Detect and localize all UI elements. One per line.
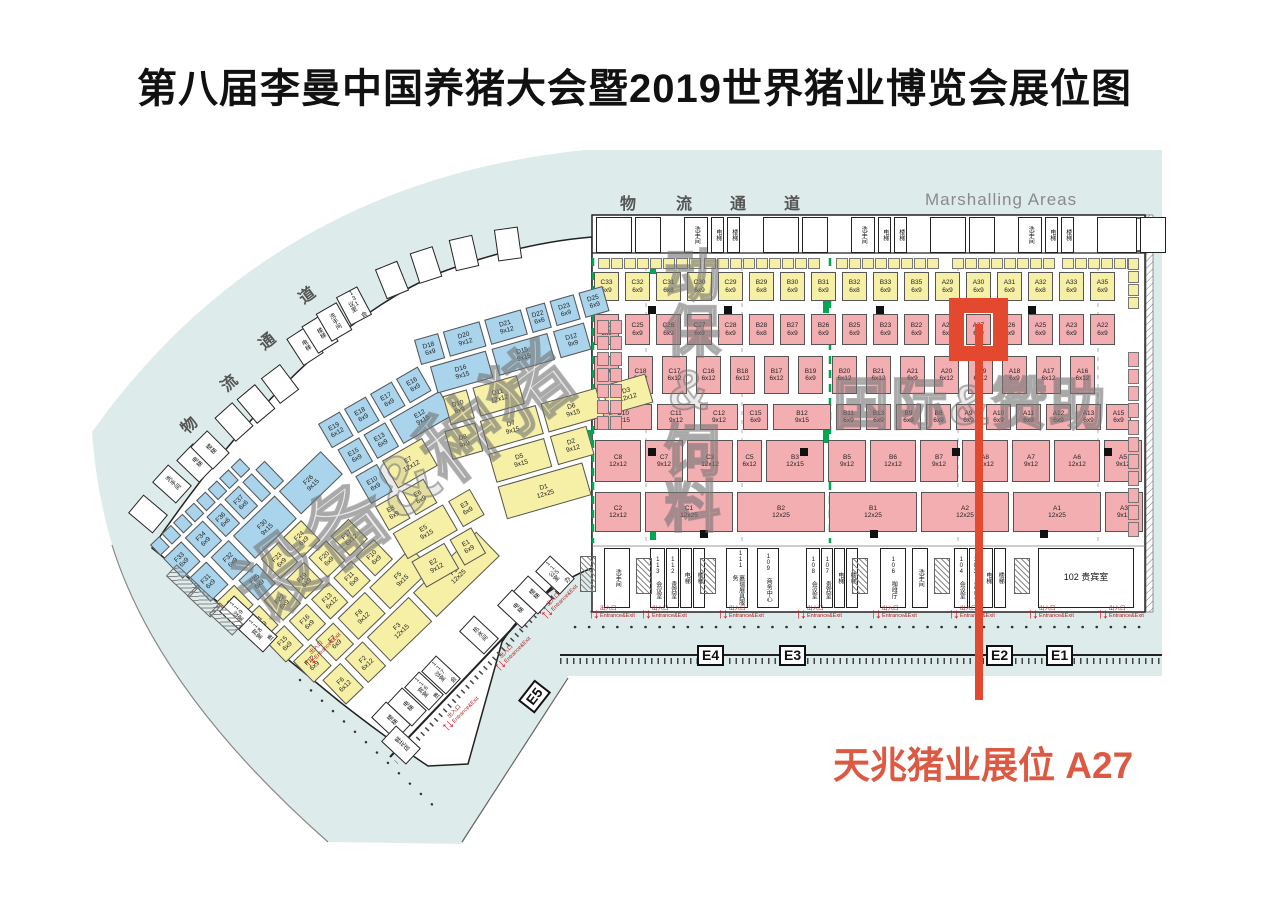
up-down-arrows-icon: ↑↓ — [588, 606, 598, 620]
booth-D12: D129x9 — [553, 323, 591, 359]
booth-C2: C212x12 — [595, 492, 641, 532]
room-bottom-15: 电梯 — [982, 548, 993, 608]
up-down-arrows-icon: ↑↓ — [717, 606, 727, 620]
room-utility — [635, 217, 661, 253]
small-booth — [1128, 437, 1139, 452]
booth-A6: A612x12 — [1054, 440, 1100, 482]
room-restroom: 洗手间 — [1018, 217, 1042, 253]
small-booth — [597, 416, 609, 430]
booth-D2: D29x12 — [550, 426, 595, 465]
booth-B27: B276x9 — [780, 314, 805, 345]
booth-B6: B612x12 — [870, 440, 916, 482]
small-booth — [610, 336, 622, 350]
booth-row: C212x12C112x25B212x25B112x25A212x25A112x… — [592, 492, 1145, 532]
storage-strip — [580, 556, 596, 592]
small-booth — [914, 258, 926, 269]
pillar — [1040, 530, 1048, 538]
small-booth — [610, 368, 622, 382]
booth-C16: C166x12 — [696, 356, 721, 394]
small-booth — [704, 258, 716, 269]
booth-C29: C296x9 — [718, 272, 743, 301]
small-booth — [756, 258, 768, 269]
small-booth — [875, 258, 887, 269]
small-booth — [1128, 403, 1139, 418]
room-bottom-11: 106 咖啡厅 — [880, 548, 906, 608]
pillar — [648, 448, 656, 456]
small-booth — [1017, 258, 1029, 269]
room-bottom-9: 电梯 — [834, 548, 845, 608]
booth-A20: A206x12 — [934, 356, 959, 394]
entrance-arrows-icon: ↑↓出入口Entrance&Exit — [795, 606, 842, 620]
small-booth — [952, 258, 964, 269]
highlight-square — [949, 298, 1008, 361]
booth-B17: B176x12 — [764, 356, 789, 394]
small-booth — [901, 258, 913, 269]
pillar — [648, 306, 656, 314]
room-bottom-13: 104 会议室 — [954, 548, 968, 608]
entrance-arrows-icon: ↑↓出入口Entrance&Exit — [588, 606, 635, 620]
room-bottom-0: 洗手间 — [604, 548, 630, 608]
small-booth — [1088, 258, 1100, 269]
room-bottom-2: 112 贵宾室 — [666, 548, 679, 608]
booth-A1: A112x25 — [1013, 492, 1101, 532]
room-utility — [802, 217, 828, 253]
small-booth — [1004, 258, 1016, 269]
small-booth — [730, 258, 742, 269]
room-utility — [763, 217, 799, 253]
booth-A30: A306x9 — [966, 272, 991, 301]
small-booth — [1128, 369, 1139, 384]
booth-D10: D106x9 — [443, 389, 475, 425]
booth-B8: B86x9 — [926, 404, 951, 430]
small-booth — [1128, 297, 1139, 309]
up-down-arrows-icon: ↑↓ — [640, 606, 650, 620]
booth-A35: A356x9 — [1090, 272, 1115, 301]
floorplan-page: 第八届李曼中国养猪大会暨2019世界猪业博览会展位图 Marshalling A… — [0, 0, 1269, 897]
small-booth — [1128, 258, 1139, 270]
entrance-label: 出入口Entrance&Exit — [1109, 606, 1144, 619]
small-booth — [927, 258, 939, 269]
room-stairs: 楼梯 — [1061, 217, 1074, 253]
booth-C28: C286x9 — [718, 314, 743, 345]
booth-C17: C176x12 — [662, 356, 687, 394]
small-booth — [597, 400, 609, 414]
small-booth — [782, 258, 794, 269]
booth-D25: D256x9 — [578, 286, 609, 318]
booth-B2: B212x25 — [737, 492, 825, 532]
pillar — [870, 530, 878, 538]
small-booth — [689, 258, 701, 269]
booth-B3: B312x15 — [766, 440, 824, 482]
booth-A7: A79x12 — [1012, 440, 1050, 482]
pillar — [724, 306, 732, 314]
entrance-label: 出入口Entrance&Exit — [652, 606, 687, 619]
small-booth — [1128, 284, 1139, 296]
small-booth — [1128, 454, 1139, 469]
room-bottom-3: 电梯 — [680, 548, 692, 608]
booth-C32: C326x9 — [625, 272, 650, 301]
booth-A12: A126x9 — [1046, 404, 1071, 430]
entrance-arrows-icon: ↑↓出入口Entrance&Exit — [1097, 606, 1144, 620]
small-booth — [965, 258, 977, 269]
small-booth — [597, 320, 609, 334]
booth-B12: B129x15 — [773, 404, 831, 430]
booth-C12: C129x12 — [700, 404, 738, 430]
entrance-arrows-icon: ↑↓出入口Entrance&Exit — [948, 606, 995, 620]
room-bottom-17: 102 贵宾室 — [1038, 548, 1134, 608]
booth-E1: E16x9 — [449, 527, 486, 565]
logistics-corridor-label: 通 — [730, 190, 746, 214]
booth-row: C236x9C256x9C266x9C276x9C286x9B286x8B276… — [592, 314, 1145, 345]
small-booth — [849, 258, 861, 269]
small-booth — [610, 384, 622, 398]
small-booth — [637, 258, 649, 269]
booth-A22: A226x9 — [1090, 314, 1115, 345]
booth-row: C206x12C186x12C176x12C166x12B186x12B176x… — [592, 356, 1145, 394]
booth-row: C109x15C119x12C129x12C156x9B129x15B116x9… — [592, 404, 1145, 430]
room-bottom-12: 洗手间 — [912, 548, 928, 608]
booth-D22: D226x6 — [526, 303, 552, 334]
booth-B1: B112x25 — [829, 492, 917, 532]
up-down-arrows-icon: ↑↓ — [870, 606, 880, 620]
booth-C30: C306x9 — [687, 272, 712, 301]
booth-C11: C119x12 — [657, 404, 695, 430]
small-booth — [598, 258, 610, 269]
small-booth — [888, 258, 900, 269]
small-booth — [597, 368, 609, 382]
booth-B28: B286x8 — [749, 314, 774, 345]
booth-A29: A296x9 — [935, 272, 960, 301]
small-booth — [795, 258, 807, 269]
booth-D8: D89x9 — [444, 422, 483, 460]
booth-row: C812x12C79x12C312x12C56x12B312x15B59x12B… — [592, 440, 1145, 482]
booth-C26: C266x9 — [656, 314, 681, 345]
booth-C27: C276x9 — [687, 314, 712, 345]
small-booth — [610, 320, 622, 334]
pillar — [1104, 448, 1112, 456]
booth-B31: B316x9 — [811, 272, 836, 301]
gate-E4: E4 — [697, 645, 724, 666]
pillar — [800, 448, 808, 456]
booth-B5: B59x12 — [828, 440, 866, 482]
room-stairs: 楼梯 — [727, 217, 740, 253]
gate-E3: E3 — [779, 645, 806, 666]
room-bottom-5: 111 嘉瑞展具服务 — [726, 548, 748, 608]
booth-A8: A812x12 — [962, 440, 1008, 482]
booth-A33: A336x9 — [1059, 272, 1084, 301]
small-booth — [1128, 488, 1139, 503]
pillar — [876, 306, 884, 314]
booth-B25: B256x9 — [842, 314, 867, 345]
booth-B20: B206x12 — [832, 356, 857, 394]
pillar — [700, 530, 708, 538]
small-booth — [650, 258, 662, 269]
entrance-label: 出入口Entrance&Exit — [600, 606, 635, 619]
small-booth — [836, 258, 848, 269]
small-booth — [1128, 352, 1139, 367]
booth-A10: A106x9 — [986, 404, 1011, 430]
small-booth — [717, 258, 729, 269]
up-down-arrows-icon: ↑↓ — [795, 606, 805, 620]
booth-B13: B136x9 — [866, 404, 891, 430]
room-utility — [930, 217, 966, 253]
room-utility — [969, 217, 995, 253]
logistics-corridor-label: 物 — [620, 190, 636, 214]
room-elevator: 电梯 — [1045, 217, 1058, 253]
small-booth — [1043, 258, 1055, 269]
booth-A13: A136x9 — [1076, 404, 1101, 430]
logistics-corridor-label: 道 — [784, 190, 800, 214]
pillar — [952, 448, 960, 456]
entrance-arrows-icon: ↑↓出入口Entrance&Exit — [640, 606, 687, 620]
booth-A11: A116x9 — [1016, 404, 1041, 430]
booth-C3: C312x12 — [687, 440, 733, 482]
booth-A25: A256x9 — [1028, 314, 1053, 345]
booth-D23: D236x9 — [550, 294, 581, 326]
room-bottom-7: 108 会议室 — [806, 548, 820, 608]
booth-B21: B216x12 — [866, 356, 891, 394]
small-booth — [610, 352, 622, 366]
small-booth — [1101, 258, 1113, 269]
storage-strip — [700, 558, 716, 594]
booth-A21: A216x9 — [900, 356, 925, 394]
small-booth — [611, 258, 623, 269]
small-booth — [1128, 271, 1139, 283]
highlight-label: 天兆猪业展位 A27 — [833, 735, 1133, 789]
booth-B11: B116x9 — [836, 404, 861, 430]
small-booth — [1114, 258, 1126, 269]
room-bottom-8: 107 贵宾室 — [821, 548, 833, 608]
gate-E2: E2 — [986, 645, 1013, 666]
entrance-label: 出入口Entrance&Exit — [882, 606, 917, 619]
small-booth — [676, 258, 688, 269]
room-bottom-6: 109 商务中心 — [757, 548, 779, 608]
small-booth — [610, 416, 622, 430]
room-restroom: 洗手间 — [851, 217, 875, 253]
booth-A18: A186x9 — [1002, 356, 1027, 394]
small-booth — [1062, 258, 1074, 269]
booth-B7: B79x12 — [920, 440, 958, 482]
small-booth — [597, 384, 609, 398]
booth-B18: B186x12 — [730, 356, 755, 394]
up-down-arrows-icon: ↑↓ — [1097, 606, 1107, 620]
booth-A31: A316x9 — [997, 272, 1022, 301]
small-booth — [991, 258, 1003, 269]
room-stairs: 楼梯 — [894, 217, 907, 253]
booth-C31: C316x8 — [656, 272, 681, 301]
small-booth — [769, 258, 781, 269]
small-booth — [610, 400, 622, 414]
up-down-arrows-icon: ↑↓ — [948, 606, 958, 620]
small-booth — [1030, 258, 1042, 269]
booth-B30: B306x9 — [780, 272, 805, 301]
booth-B19: B196x9 — [798, 356, 823, 394]
booth-B9: B96x9 — [896, 404, 921, 430]
booth-B23: B236x9 — [873, 314, 898, 345]
small-booth — [1128, 505, 1139, 520]
booth-C15: C156x9 — [743, 404, 768, 430]
storage-strip — [1014, 558, 1030, 594]
entrance-label: 出入口Entrance&Exit — [729, 606, 764, 619]
storage-strip — [934, 558, 950, 594]
booth-A23: A236x9 — [1059, 314, 1084, 345]
booth-C1: C112x25 — [645, 492, 733, 532]
small-booth — [663, 258, 675, 269]
small-booth — [1128, 386, 1139, 401]
booth-B35: B356x9 — [904, 272, 929, 301]
booth-B26: B266x9 — [811, 314, 836, 345]
booth-row: C336x9C326x9C316x8C306x9C296x9B296x8B306… — [592, 272, 1145, 301]
booth-A32: A326x8 — [1028, 272, 1053, 301]
small-booth — [1128, 471, 1139, 486]
booth-A17: A176x12 — [1036, 356, 1061, 394]
highlight-leader-line — [975, 324, 983, 700]
small-booth — [597, 336, 609, 350]
small-booth — [1075, 258, 1087, 269]
page-title: 第八届李曼中国养猪大会暨2019世界猪业博览会展位图 — [0, 56, 1269, 114]
logistics-corridor-label: 流 — [676, 190, 692, 214]
booth-C5: C56x12 — [737, 440, 762, 482]
booth-B22: B226x9 — [904, 314, 929, 345]
storage-strip — [852, 558, 868, 594]
small-booth — [743, 258, 755, 269]
entrance-arrows-icon: ↑↓出入口Entrance&Exit — [870, 606, 917, 620]
small-booth — [597, 352, 609, 366]
small-booth — [862, 258, 874, 269]
booth-B33: B336x9 — [873, 272, 898, 301]
room-bottom-1: 113 会议室 — [650, 548, 665, 608]
room-utility — [1097, 217, 1137, 253]
small-booth — [978, 258, 990, 269]
entrance-arrows-icon: ↑↓出入口Entrance&Exit — [1027, 606, 1074, 620]
room-elevator: 电梯 — [711, 217, 724, 253]
booth-A16: A166x12 — [1070, 356, 1095, 394]
pillar — [1028, 306, 1036, 314]
marshalling-areas-label: Marshalling Areas — [925, 190, 1077, 210]
entrance-label: 出入口Entrance&Exit — [1039, 606, 1074, 619]
small-booth — [1128, 420, 1139, 435]
room-utility — [596, 217, 632, 253]
gate-E1: E1 — [1046, 645, 1073, 666]
booth-A2: A212x25 — [921, 492, 1009, 532]
small-booth — [624, 258, 636, 269]
room-elevator: 电梯 — [878, 217, 891, 253]
entrance-arrows-icon: ↑↓出入口Entrance&Exit — [717, 606, 764, 620]
small-booth — [808, 258, 820, 269]
booth-B29: B296x8 — [749, 272, 774, 301]
room-curve — [494, 226, 522, 261]
room-bottom-16: 楼梯 — [994, 548, 1006, 608]
storage-strip — [636, 558, 652, 594]
small-booth — [1128, 522, 1139, 537]
room-restroom: 洗手间 — [684, 217, 708, 253]
room-utility — [1140, 217, 1166, 253]
booth-B32: B326x8 — [842, 272, 867, 301]
up-down-arrows-icon: ↑↓ — [1027, 606, 1037, 620]
entrance-label: 出入口Entrance&Exit — [807, 606, 842, 619]
